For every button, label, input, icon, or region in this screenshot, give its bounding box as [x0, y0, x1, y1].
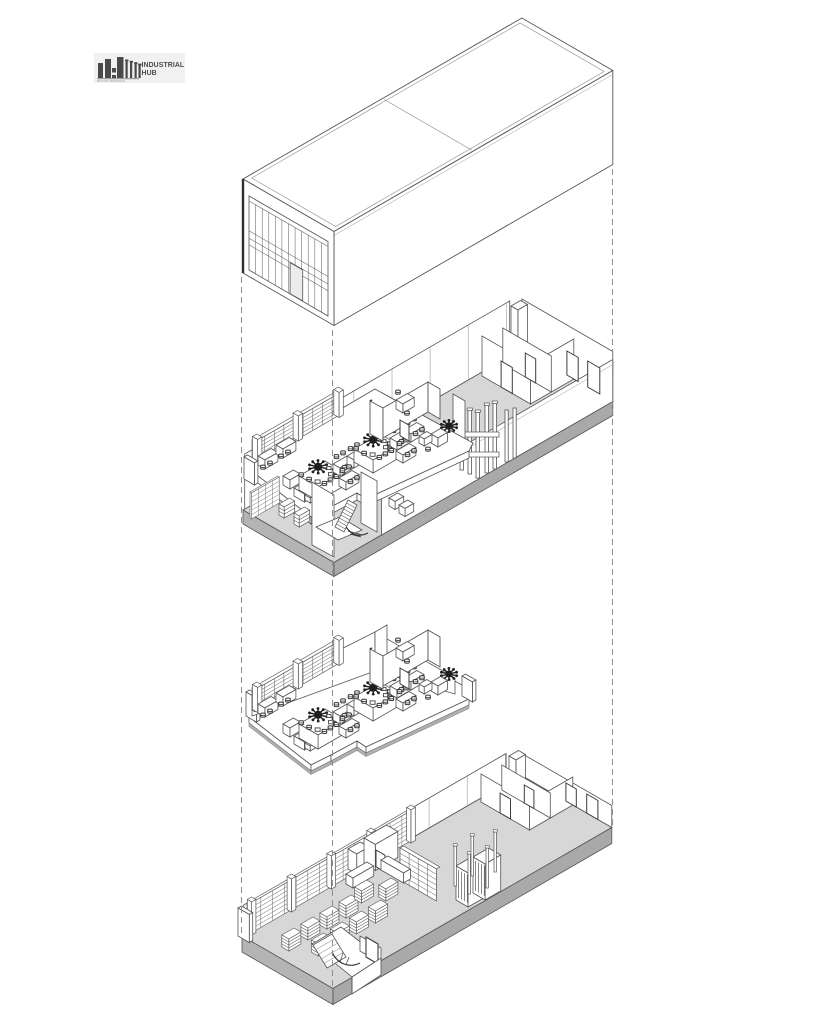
svg-text:INDUSTRIAL: INDUSTRIAL [142, 62, 185, 69]
svg-text:MICTOFA TBOPIAHHE: MICTOFA TBOPIAHHE [97, 79, 125, 83]
svg-text:HUB: HUB [142, 70, 157, 77]
